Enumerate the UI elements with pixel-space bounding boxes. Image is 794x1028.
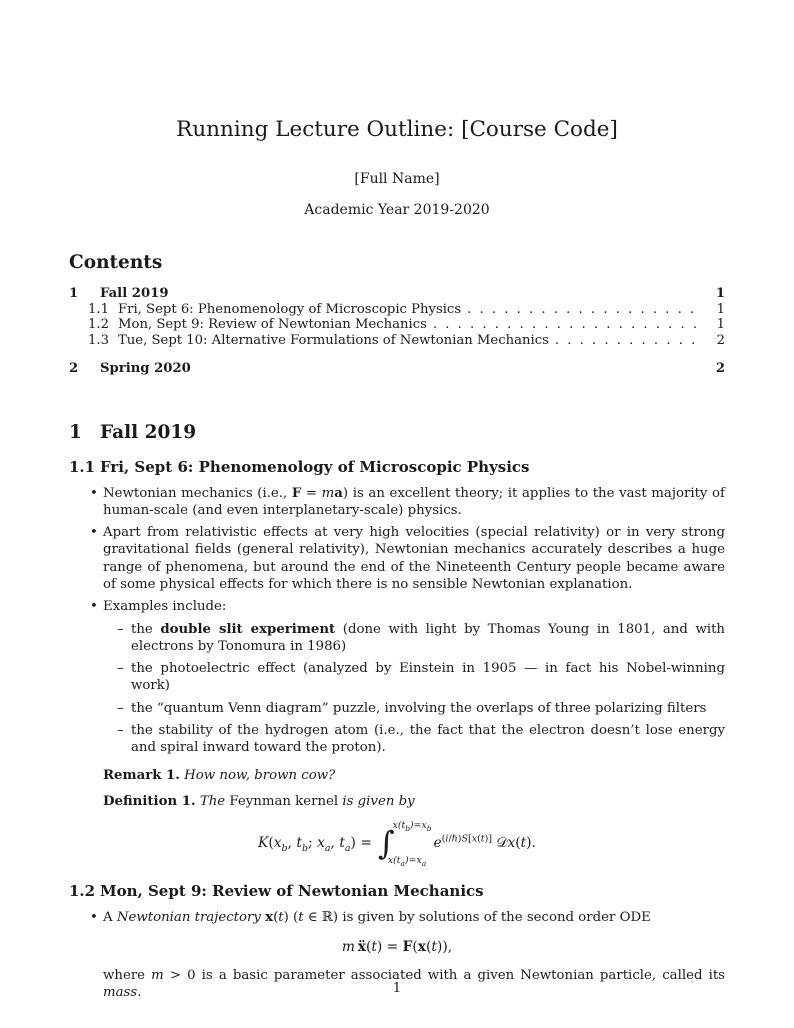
toc-entry-section-1: 1 Fall 2019 1 (69, 286, 725, 302)
dash-marker-icon (117, 700, 131, 717)
contents-heading: Contents (69, 253, 725, 273)
toc-dot-leader (433, 317, 701, 333)
dash-marker-icon (117, 621, 131, 656)
toc-entry-page: 1 (707, 317, 725, 333)
subsection-heading-1-1: 1.1Fri, Sept 6: Phenomenology of Microsc… (69, 458, 725, 477)
sub-bullet-item: the stability of the hydrogen atom (i.e.… (69, 722, 725, 757)
toc-entry-section-2: 2 Spring 2020 2 (69, 361, 725, 377)
toc-entry-label: Fall 2019 (100, 286, 169, 302)
bullet-item: Newtonian mechanics (i.e., F = ma) is an… (69, 485, 725, 520)
section-number: 1 (69, 422, 100, 444)
integral-icon: ∫ x(tb)=xb x(ta)=xa (378, 820, 432, 866)
sub-bullet-text: the “quantum Venn diagram” puzzle, invol… (131, 700, 725, 717)
bullet-item: Examples include: (69, 598, 725, 615)
toc-entry-subsection-1-2: 1.2 Mon, Sept 9: Review of Newtonian Mec… (69, 317, 725, 333)
definition-paragraph: Definition 1. The Feynman kernel is give… (103, 793, 725, 810)
toc-dot-leader (555, 333, 701, 349)
document-page: Running Lecture Outline: [Course Code] [… (0, 0, 794, 1028)
dash-marker-icon (117, 660, 131, 695)
toc-entry-number: 1 (69, 286, 100, 302)
toc-entry-subsection-1-1: 1.1 Fri, Sept 6: Phenomenology of Micros… (69, 302, 725, 318)
bullet-text: Examples include: (103, 598, 725, 615)
sub-bullet-text: the double slit experiment (done with li… (131, 621, 725, 656)
newton-ode-formula: m ẍ(t) = F(x(t)), (69, 937, 725, 957)
toc-entry-number: 1.1 (88, 302, 118, 318)
bullet-text: A Newtonian trajectory x(t) (t ∈ ℝ) is g… (103, 909, 725, 926)
bullet-marker-icon (90, 598, 103, 615)
document-title: Running Lecture Outline: [Course Code] (69, 117, 725, 143)
subsection-title: Mon, Sept 9: Review of Newtonian Mechani… (100, 882, 484, 900)
bullet-text: Newtonian mechanics (i.e., F = ma) is an… (103, 485, 725, 520)
toc-entry-page: 1 (707, 302, 725, 318)
toc-entry-number: 2 (69, 361, 100, 377)
sub-bullet-item: the “quantum Venn diagram” puzzle, invol… (69, 700, 725, 717)
toc-entry-number: 1.3 (88, 333, 118, 349)
subsection-heading-1-2: 1.2Mon, Sept 9: Review of Newtonian Mech… (69, 882, 725, 901)
toc-entry-label: Spring 2020 (100, 361, 191, 377)
bullet-item: Apart from relativistic effects at very … (69, 524, 725, 593)
bullet-marker-icon (90, 909, 103, 926)
formula-lhs: K(xb, tb; xa, ta) = (258, 835, 372, 851)
sub-bullet-text: the stability of the hydrogen atom (i.e.… (131, 722, 725, 757)
subsection-number: 1.2 (69, 882, 100, 901)
formula-integrand: e(i/ℏ)S[x(t)] 𝒟x(t). (434, 835, 536, 851)
document-author: [Full Name] (69, 170, 725, 188)
bullet-marker-icon (90, 524, 103, 593)
integral-limits: x(tb)=xb x(ta)=xa (393, 820, 432, 866)
bullet-text: Apart from relativistic effects at very … (103, 524, 725, 593)
section-heading-fall-2019: 1Fall 2019 (69, 422, 725, 444)
subsection-number: 1.1 (69, 458, 100, 477)
table-of-contents: 1 Fall 2019 1 1.1 Fri, Sept 6: Phenomeno… (69, 286, 725, 377)
toc-entry-label: Mon, Sept 9: Review of Newtonian Mechani… (118, 317, 427, 333)
toc-dot-leader (467, 302, 701, 318)
subsection-title: Fri, Sept 6: Phenomenology of Microscopi… (100, 458, 530, 476)
section-title: Fall 2019 (100, 422, 196, 443)
sub-bullet-item: the double slit experiment (done with li… (69, 621, 725, 656)
toc-entry-number: 1.2 (88, 317, 118, 333)
integral-lower-limit: x(ta)=xa (383, 855, 432, 866)
integral-upper-limit: x(tb)=xb (393, 820, 432, 831)
bullet-marker-icon (90, 485, 103, 520)
toc-entry-page: 1 (707, 286, 725, 302)
remark-paragraph: Remark 1. How now, brown cow? (103, 767, 725, 784)
document-date: Academic Year 2019-2020 (69, 201, 725, 219)
toc-entry-page: 2 (707, 361, 725, 377)
toc-entry-subsection-1-3: 1.3 Tue, Sept 10: Alternative Formulatio… (69, 333, 725, 349)
feynman-kernel-formula: K(xb, tb; xa, ta) = ∫ x(tb)=xb x(ta)=xa … (69, 820, 725, 866)
sub-bullet-text: the photoelectric effect (analyzed by Ei… (131, 660, 725, 695)
toc-entry-label: Fri, Sept 6: Phenomenology of Microscopi… (118, 302, 461, 318)
sub-bullet-item: the photoelectric effect (analyzed by Ei… (69, 660, 725, 695)
bullet-item: A Newtonian trajectory x(t) (t ∈ ℝ) is g… (69, 909, 725, 926)
dash-marker-icon (117, 722, 131, 757)
toc-entry-page: 2 (707, 333, 725, 349)
toc-entry-label: Tue, Sept 10: Alternative Formulations o… (118, 333, 549, 349)
page-number: 1 (0, 981, 794, 996)
